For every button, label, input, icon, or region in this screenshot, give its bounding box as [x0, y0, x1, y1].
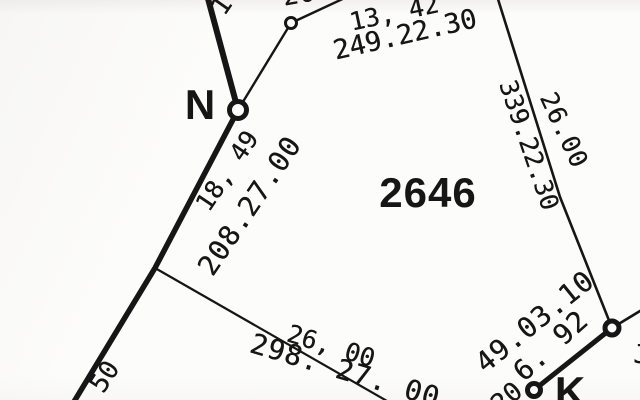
boundary-line-east [497, 0, 612, 328]
survey-marker-upper [286, 18, 297, 29]
label-partial-char-right-edge: J [633, 342, 640, 368]
label-point-label-k: K [555, 371, 585, 400]
label-point-label-n: N [185, 84, 215, 126]
survey-marker-n [230, 102, 247, 119]
plat-map-image: 2646NK13, 42249.22.30339.22.3026.0018, 4… [0, 0, 640, 400]
label-parcel-number: 2646 [379, 172, 476, 214]
survey-marker-east [605, 321, 619, 335]
